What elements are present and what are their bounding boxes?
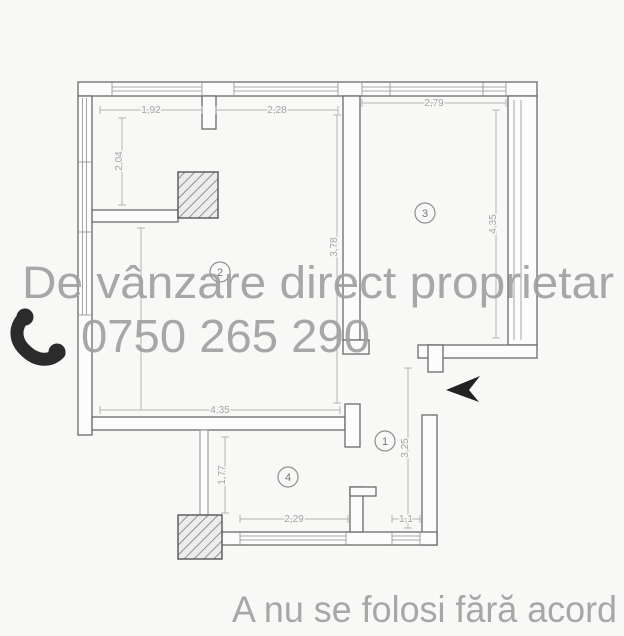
dim-label-2-04: 2,04: [114, 151, 125, 171]
column-hatched-top: [178, 172, 218, 218]
dim-label-1-1: 1,1: [399, 514, 413, 525]
wall-room3-bottom: [428, 345, 537, 358]
room-number-1: 1: [382, 436, 388, 448]
wall-top-stub: [202, 96, 216, 129]
watermark-title: De vânzare direct proprietar: [22, 257, 614, 308]
wall-top: [78, 82, 537, 96]
entrance-arrow-icon: [446, 376, 480, 402]
dim-label-1-77: 1,77: [217, 465, 228, 485]
floorplan-image: 1,92 2,28 2,79 2,04 3,78 4,35 4,35 1,77 …: [0, 0, 624, 636]
dim-label-1-92: 1,92: [141, 105, 161, 116]
wall-room4-left: [200, 430, 208, 515]
dim-label-2-28: 2,28: [267, 105, 287, 116]
room-badge-3: 3: [415, 203, 435, 223]
wall-hall-right: [422, 415, 437, 545]
room-number-3: 3: [422, 208, 428, 220]
wall-hall-left-jamb: [345, 404, 360, 447]
watermark-footer: A nu se folosi fără acord: [232, 589, 617, 630]
phone-handset-icon: [17, 309, 66, 361]
watermark-phone-number: 0750 265 290: [81, 310, 370, 362]
room-badge-4: 4: [278, 467, 298, 487]
floorplan-svg: 1,92 2,28 2,79 2,04 3,78 4,35 4,35 1,77 …: [0, 0, 624, 636]
dim-label-3-25: 3,25: [400, 438, 411, 458]
wall-entry-jamb: [428, 345, 443, 372]
dim-label-4-35-right: 4,35: [488, 214, 499, 234]
room-badge-1: 1: [375, 431, 395, 451]
dim-label-4-35-bottom: 4,35: [210, 405, 230, 416]
dim-label-3-78: 3,78: [329, 237, 340, 257]
room-number-4: 4: [285, 472, 291, 484]
wall-alcove: [92, 210, 178, 222]
column-hatched-bottom: [178, 515, 222, 559]
wall-bottom: [206, 532, 437, 545]
wall-room2-bottom: [92, 417, 345, 430]
dim-label-2-79: 2,79: [424, 98, 444, 109]
dim-label-2-29: 2,29: [284, 514, 304, 525]
wall-room4-right-notch: [350, 487, 376, 496]
